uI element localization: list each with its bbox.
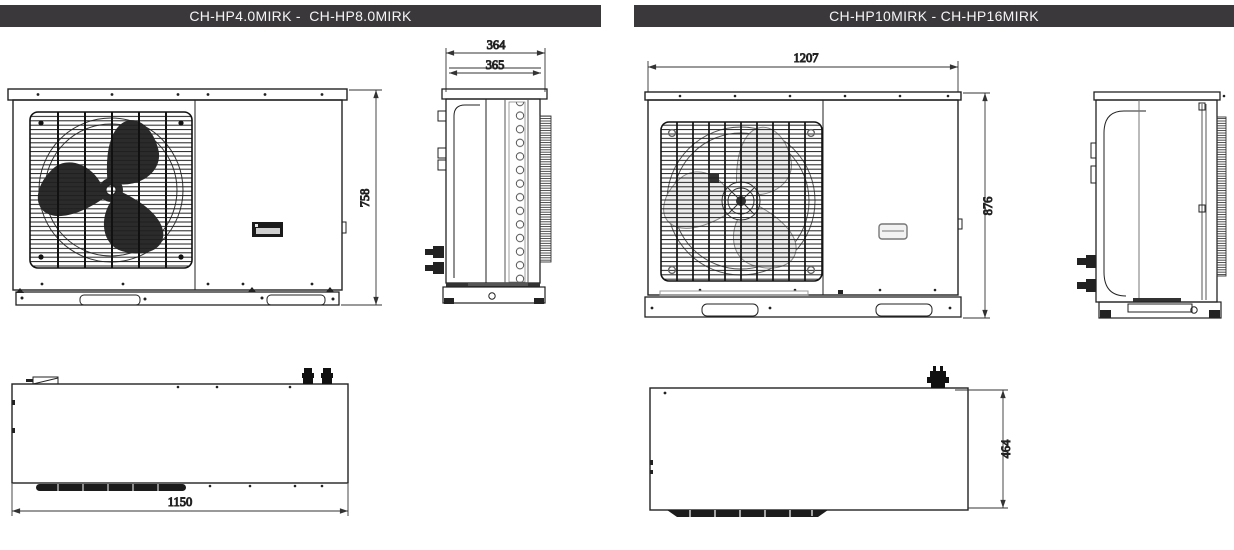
right-top-view: 464 (650, 366, 1013, 517)
refrigerant-valves (425, 246, 444, 274)
vent-strip (667, 510, 828, 517)
dimension-drawings: 758 364 365 (0, 0, 1234, 550)
dimension-label-width-left: 1150 (168, 495, 193, 509)
dimension-label-depth-right: 464 (999, 439, 1013, 459)
side-base (443, 283, 545, 304)
refrigerant-valves (1077, 255, 1096, 292)
coil-fins (1217, 117, 1226, 276)
right-front-view: 1207 (639, 51, 995, 318)
dimension-label-height-right: 876 (981, 197, 995, 216)
fan-grille-large (639, 107, 847, 316)
dimension-label-height-left: 758 (358, 189, 372, 208)
datasheet-page: CH-HP4.0MIRK - CH-HP8.0MIRK CH-HP10MIRK … (0, 0, 1234, 550)
coil-fins (540, 116, 551, 262)
front-width-dimension (648, 61, 958, 92)
left-top-view: 1150 (12, 368, 348, 516)
top-view-valve (927, 366, 949, 388)
base-panel (645, 297, 961, 317)
right-side-view (1077, 92, 1226, 318)
left-side-view: 364 365 (425, 38, 551, 304)
side-base (1099, 298, 1221, 318)
dimension-label-depth-outer: 364 (487, 38, 507, 52)
nameplate-label (879, 224, 907, 239)
dimension-label-width-right: 1207 (794, 51, 819, 65)
nameplate-label (252, 222, 283, 237)
top-view-valves (302, 368, 333, 384)
left-front-view: 758 (8, 89, 382, 305)
vent-strip (36, 484, 323, 491)
dimension-label-depth-inner: 365 (486, 58, 505, 72)
fan-grille (14, 101, 211, 299)
handle-clip (26, 377, 58, 384)
